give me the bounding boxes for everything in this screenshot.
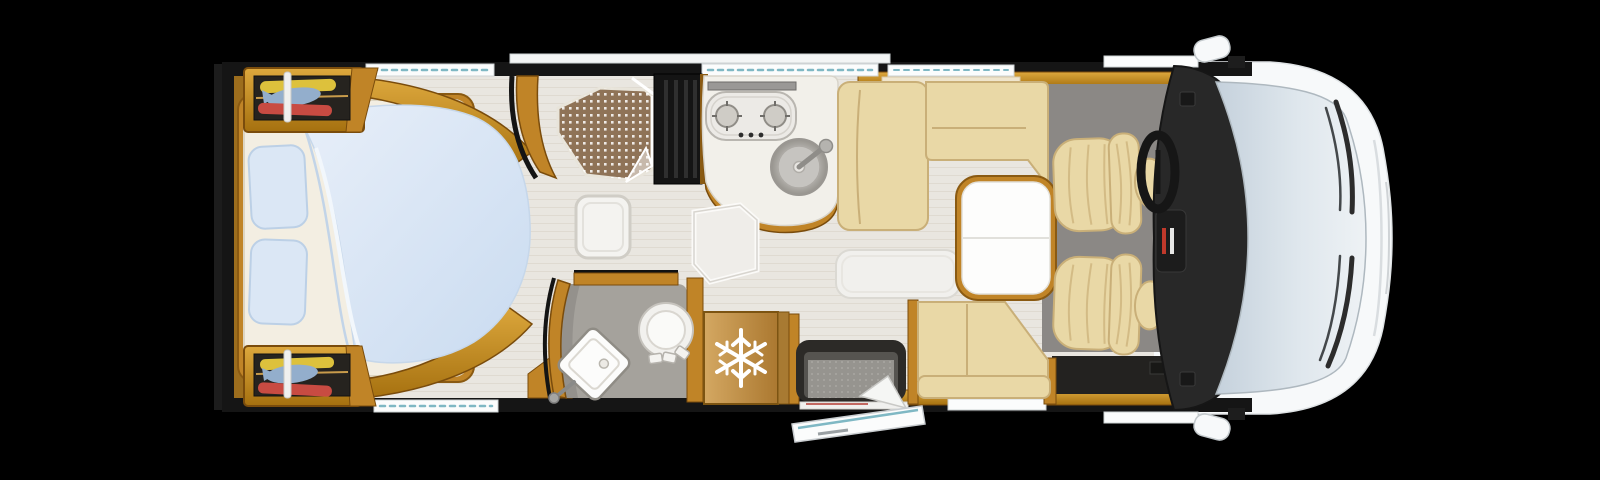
dash-vent xyxy=(1180,372,1195,386)
hall-mat xyxy=(694,205,757,282)
window-cabdoor-top xyxy=(1104,56,1198,67)
hob xyxy=(706,92,796,140)
motorhome-floorplan: Motorhome floor plan — top view xyxy=(0,0,1600,480)
dinette-table xyxy=(956,176,1056,300)
bench-backrest xyxy=(918,376,1050,398)
awning-rail xyxy=(510,54,890,63)
tall-cabinet: Tall cabinet xyxy=(654,74,708,184)
wardrobe-divider xyxy=(284,350,291,398)
pillow xyxy=(248,145,308,230)
window-bench xyxy=(948,399,1046,410)
bench-side-panel xyxy=(908,300,918,404)
wall-rear xyxy=(222,62,236,412)
pillow xyxy=(249,239,308,325)
floorplan-canvas: Motorhome floor plan — top view xyxy=(0,0,1600,480)
wardrobe-divider xyxy=(284,72,291,122)
fridge: Refrigerator xyxy=(704,312,789,404)
window-cabdoor-bottom xyxy=(1104,412,1198,423)
sofa-chaise xyxy=(838,82,928,230)
wardrobe-top: Wardrobe with clothes (offside) xyxy=(244,68,378,132)
wardrobe-bottom: Wardrobe with clothes (nearside) xyxy=(244,346,376,406)
washroom-wall-top xyxy=(574,273,678,285)
washroom: Washroom — toilet and basin xyxy=(545,270,703,403)
dash-vent xyxy=(1180,92,1195,106)
rug xyxy=(836,250,960,298)
entry: Entrance step and open door xyxy=(792,340,925,442)
hob-backsplash xyxy=(708,82,796,90)
